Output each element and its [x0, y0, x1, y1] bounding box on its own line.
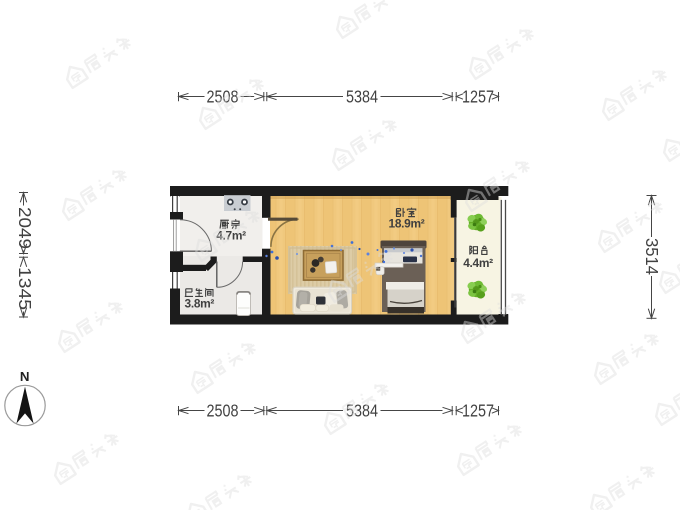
svg-text:18.9m²: 18.9m² — [389, 216, 425, 230]
svg-text:1345: 1345 — [15, 267, 35, 310]
svg-text:1257: 1257 — [462, 401, 494, 421]
svg-text:3514: 3514 — [642, 238, 662, 275]
svg-text:2049: 2049 — [15, 207, 35, 249]
svg-text:5384: 5384 — [346, 87, 378, 107]
svg-text:4.4m²: 4.4m² — [463, 256, 493, 270]
svg-text:N: N — [20, 369, 30, 384]
svg-text:2508: 2508 — [207, 401, 239, 421]
svg-text:1257: 1257 — [462, 87, 494, 107]
svg-text:3.8m²: 3.8m² — [185, 297, 215, 311]
